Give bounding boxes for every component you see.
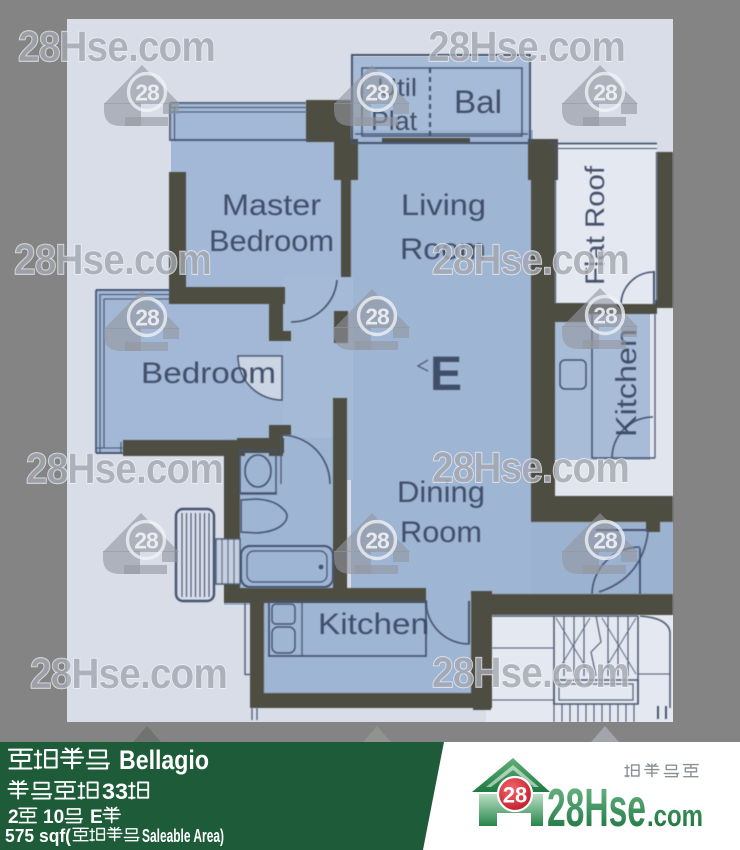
svg-text:28Hse.com: 28Hse.com bbox=[14, 236, 211, 284]
svg-text:Kitchen: Kitchen bbox=[318, 608, 429, 641]
svg-text:28Hse.com: 28Hse.com bbox=[428, 23, 625, 71]
svg-text:28Hse.com: 28Hse.com bbox=[26, 445, 223, 493]
svg-text:Room: Room bbox=[400, 516, 482, 549]
svg-text:E: E bbox=[430, 348, 462, 401]
svg-text:28Hse: 28Hse bbox=[547, 778, 646, 838]
svg-text:Bellagio: Bellagio bbox=[119, 745, 209, 775]
svg-text:28Hse.com: 28Hse.com bbox=[432, 649, 629, 697]
svg-text:28Hse.com: 28Hse.com bbox=[18, 23, 215, 71]
svg-text:Bal: Bal bbox=[454, 84, 502, 120]
svg-text:2: 2 bbox=[8, 807, 19, 828]
svg-text:28Hse.com: 28Hse.com bbox=[30, 650, 227, 698]
svg-text:Master: Master bbox=[222, 189, 321, 222]
svg-text:Bedroom: Bedroom bbox=[209, 225, 334, 258]
svg-text:.com: .com bbox=[647, 798, 703, 833]
svg-text:Saleable Area): Saleable Area) bbox=[142, 826, 224, 846]
svg-text:28Hse.com: 28Hse.com bbox=[432, 236, 629, 284]
svg-text:575 sqf(: 575 sqf( bbox=[5, 826, 71, 846]
svg-text:33: 33 bbox=[102, 779, 128, 804]
svg-text:28Hse.com: 28Hse.com bbox=[432, 444, 629, 492]
svg-text:Bedroom: Bedroom bbox=[141, 357, 276, 390]
svg-text:Living: Living bbox=[401, 189, 486, 222]
svg-text:28: 28 bbox=[503, 783, 527, 808]
svg-text:E: E bbox=[90, 807, 103, 828]
svg-text:10: 10 bbox=[43, 807, 64, 828]
